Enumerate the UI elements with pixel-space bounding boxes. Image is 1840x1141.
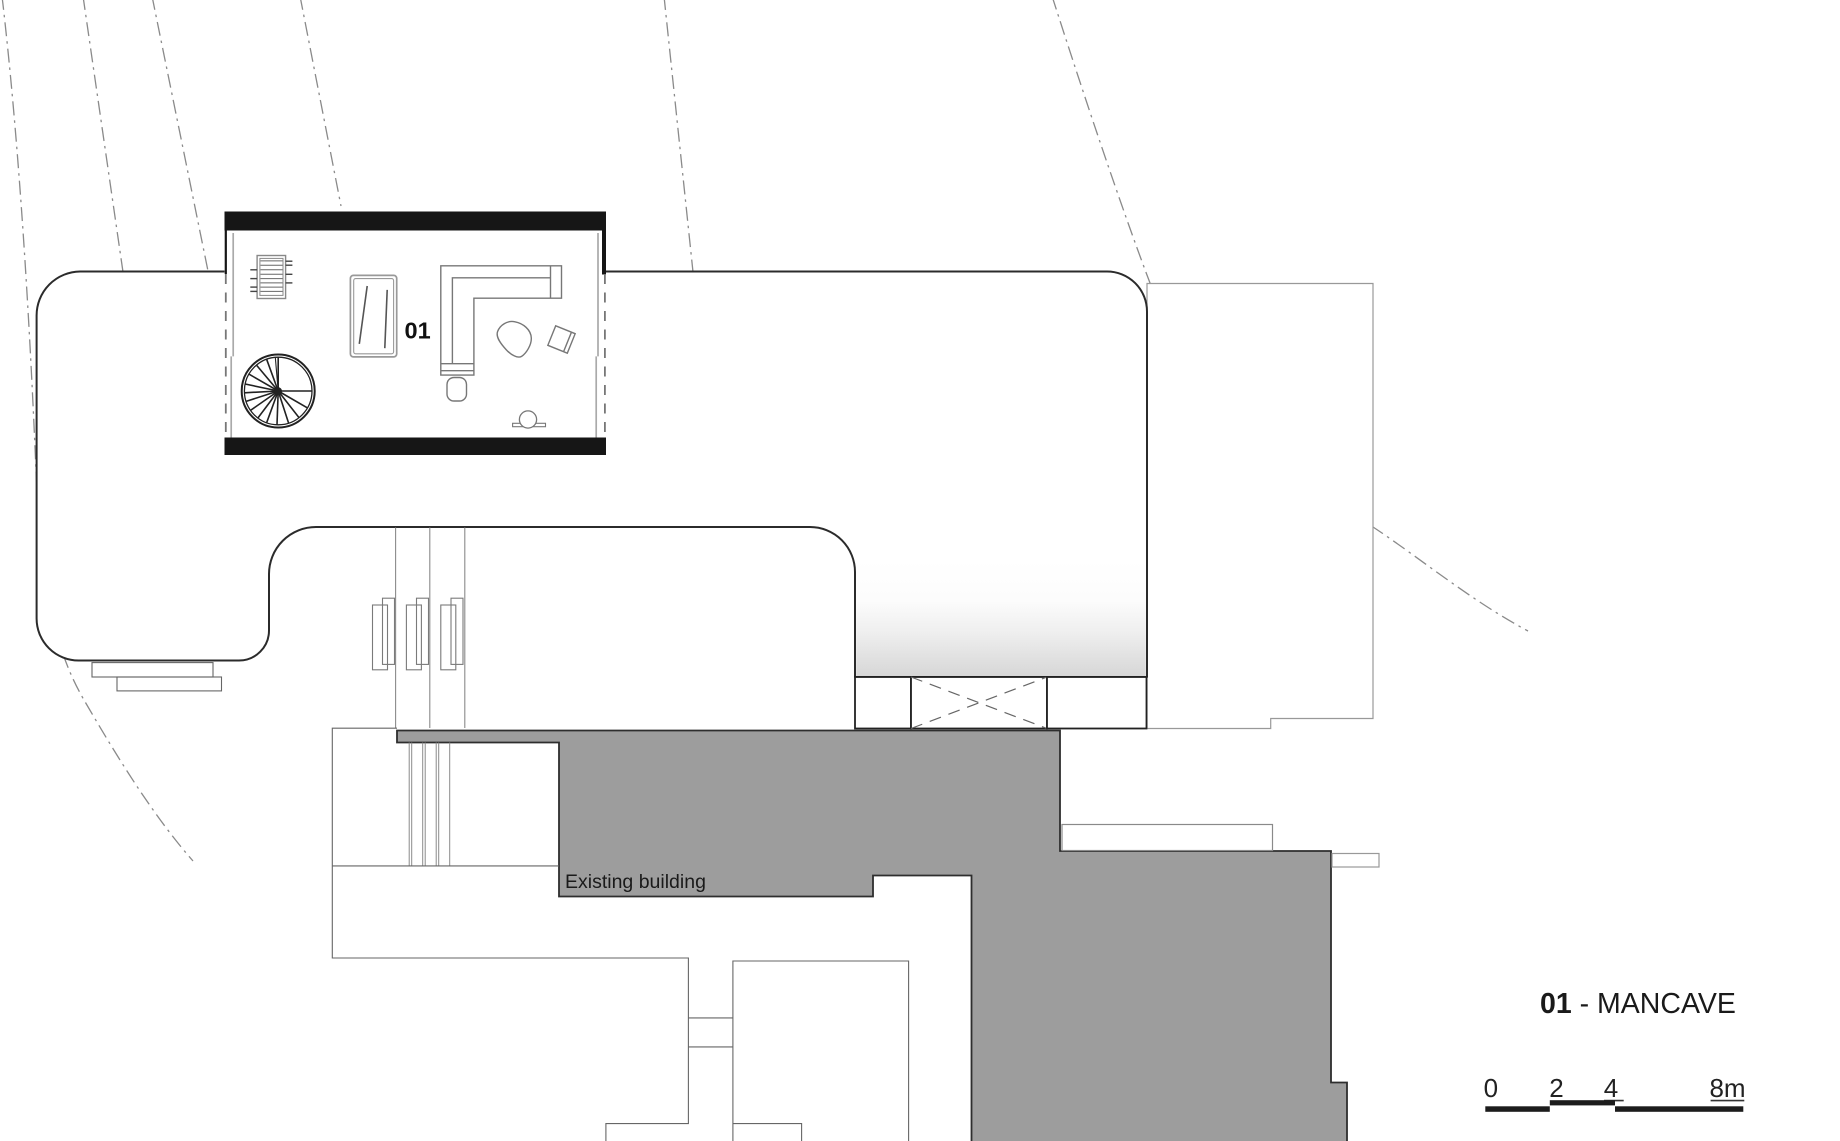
svg-text:2: 2 bbox=[1549, 1073, 1563, 1103]
svg-text:8m: 8m bbox=[1709, 1073, 1745, 1103]
svg-text:4: 4 bbox=[1604, 1073, 1618, 1103]
svg-text:01: 01 bbox=[405, 318, 431, 344]
svg-text:Existing building: Existing building bbox=[565, 871, 706, 893]
svg-text:01 - MANCAVE: 01 - MANCAVE bbox=[1540, 988, 1736, 1020]
svg-text:0: 0 bbox=[1484, 1073, 1498, 1103]
